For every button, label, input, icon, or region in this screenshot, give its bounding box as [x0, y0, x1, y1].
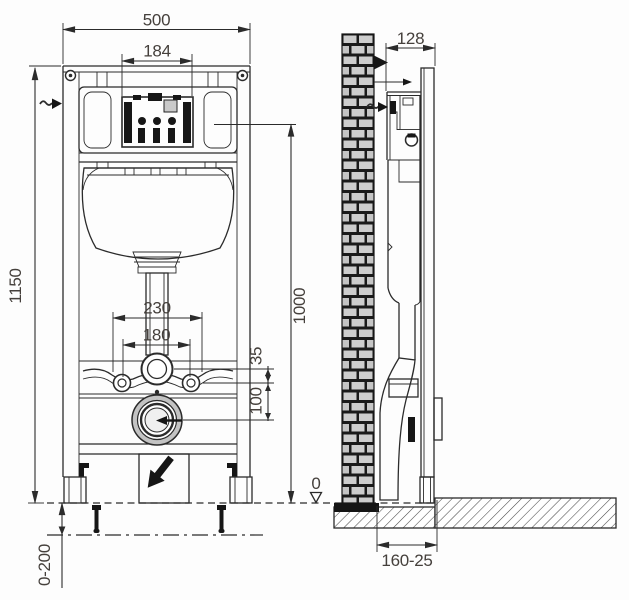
flush-plate-unit: [122, 93, 193, 147]
support-foot-side: [420, 477, 434, 503]
wc-fixing-point-right: [183, 375, 200, 392]
floor-slab-right: [435, 498, 616, 528]
anchor-bolt-right: [217, 505, 226, 533]
pan-fixing-profile: [434, 398, 442, 440]
floor-level-marker: 0: [311, 474, 322, 503]
frame-bracket-right: [227, 463, 237, 477]
support-foot-right: [230, 477, 252, 503]
dim-160-25-label: 160-25: [381, 551, 432, 570]
corner-screw-right: [238, 71, 248, 81]
dim-230-label: 230: [143, 299, 170, 318]
bracket-pointer-arrow-icon: [403, 79, 412, 86]
dim-0-200-label: 0-200: [35, 544, 54, 586]
threaded-rod: [408, 417, 415, 442]
fill-valve: [406, 134, 418, 147]
cistern-tank: [82, 168, 233, 259]
anchor-bolt-left: [92, 505, 101, 533]
frame-bracket-left: [79, 463, 89, 477]
side-view: 0: [311, 34, 617, 528]
drawing-canvas: 0 500 184 1150 1000 230 180: [0, 0, 629, 600]
water-supply-arrow-icon: [40, 99, 62, 110]
wc-fixing-point-left: [114, 375, 131, 392]
drain-channel: [139, 452, 189, 503]
dim-35-label: 35: [247, 347, 266, 365]
dim-184-label: 184: [143, 42, 170, 61]
dimension-184: 184: [122, 42, 192, 97]
dimension-1150: 1150: [6, 66, 61, 503]
dim-100-label: 100: [247, 387, 266, 414]
dim-1150-label: 1150: [6, 268, 25, 303]
dim-180-label: 180: [143, 326, 170, 345]
technical-drawing: 0 500 184 1150 1000 230 180: [0, 0, 629, 600]
dim-1000-label: 1000: [290, 288, 309, 325]
drain-bend-side: [380, 303, 415, 500]
drain-direction-arrow-icon: [141, 452, 179, 493]
dim-128-label: 128: [397, 29, 424, 48]
dimension-1000: 1000: [214, 125, 309, 504]
frame-rail-side: [420, 68, 442, 503]
panel-rail: [79, 153, 237, 168]
zero-label: 0: [311, 474, 320, 493]
dimension-0-200: 0-200: [35, 503, 65, 588]
dim-500-label: 500: [143, 11, 170, 30]
wall-bracket: [374, 79, 412, 86]
cistern-side: [367, 92, 421, 305]
flush-bend: [142, 354, 173, 395]
support-foot-left: [64, 477, 86, 503]
wall-footing: [334, 503, 379, 512]
drain-outlet: [132, 395, 182, 445]
level-triangle-icon: [311, 493, 322, 503]
corner-screw-left: [66, 71, 76, 81]
